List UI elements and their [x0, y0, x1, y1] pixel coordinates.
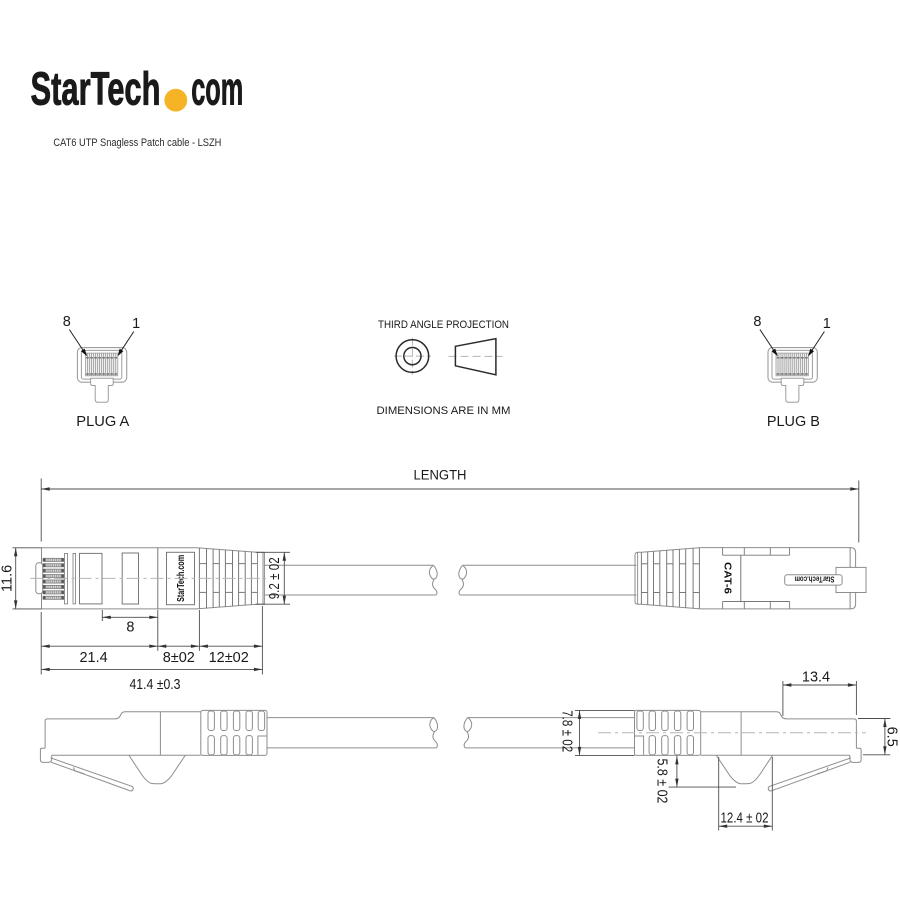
svg-text:8±02: 8±02: [163, 650, 195, 666]
svg-text:1: 1: [132, 316, 140, 332]
svg-text:8: 8: [63, 314, 71, 330]
svg-text:8: 8: [126, 620, 134, 636]
svg-text:41.4 ±0.3: 41.4 ±0.3: [130, 677, 181, 693]
svg-text:CAT-6: CAT-6: [722, 562, 734, 594]
svg-text:13.4: 13.4: [802, 670, 830, 686]
svg-text:PLUG A: PLUG A: [76, 413, 129, 430]
svg-text:12±02: 12±02: [209, 650, 249, 666]
svg-text:PLUG B: PLUG B: [767, 413, 820, 430]
svg-text:9.2 ± 02: 9.2 ± 02: [267, 557, 283, 599]
svg-text:THIRD ANGLE PROJECTION: THIRD ANGLE PROJECTION: [378, 319, 509, 331]
svg-text:6.5: 6.5: [884, 727, 900, 747]
svg-text:DIMENSIONS ARE IN MM: DIMENSIONS ARE IN MM: [377, 405, 511, 417]
svg-text:CAT6 UTP Snagless Patch cable: CAT6 UTP Snagless Patch cable - LSZH: [53, 137, 221, 149]
svg-text:21.4: 21.4: [79, 650, 107, 666]
svg-text:1: 1: [823, 316, 831, 332]
svg-text:StarTech.com: StarTech.com: [794, 575, 834, 585]
svg-text:12.4 ± 02: 12.4 ± 02: [721, 811, 769, 827]
svg-text:7.8 ± 02: 7.8 ± 02: [559, 710, 575, 752]
svg-text:LENGTH: LENGTH: [414, 468, 467, 483]
svg-text:8: 8: [753, 314, 761, 330]
svg-text:5.8 ± 02: 5.8 ± 02: [654, 759, 670, 804]
svg-text:11.6: 11.6: [0, 565, 16, 592]
svg-text:com: com: [191, 63, 243, 115]
svg-text:StarTech: StarTech: [31, 63, 161, 115]
